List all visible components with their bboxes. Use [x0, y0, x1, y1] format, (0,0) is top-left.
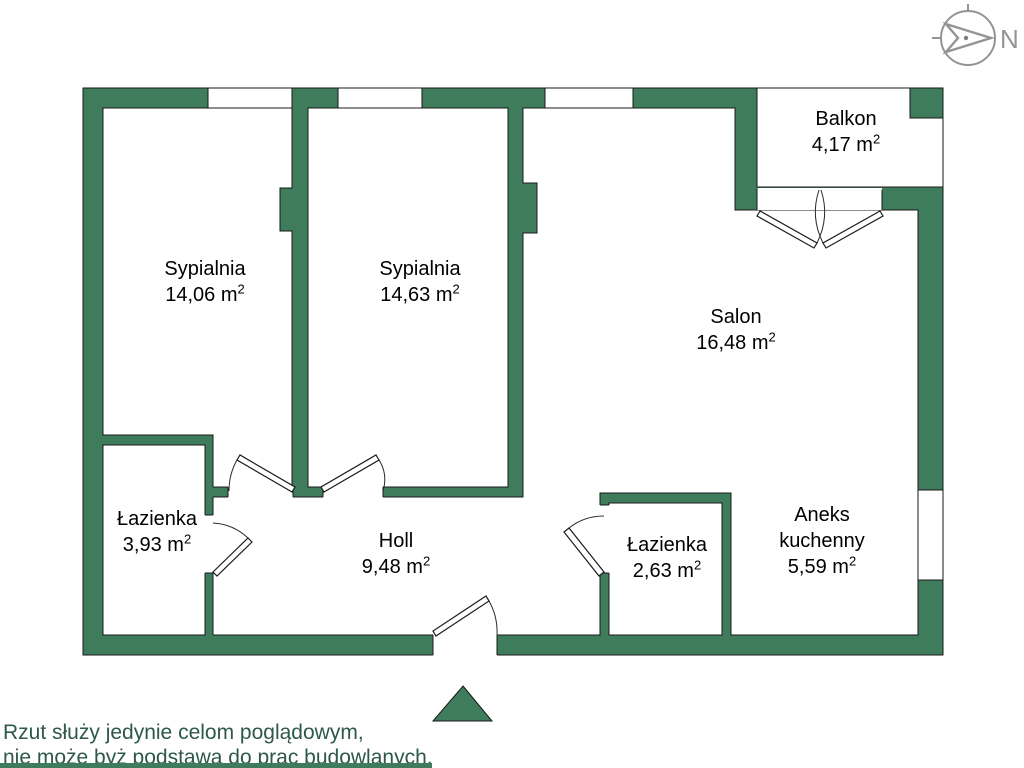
- room-area-value: 2,63 m: [633, 560, 694, 582]
- room-area-sup: 2: [238, 281, 245, 296]
- room-name: Sypialnia: [379, 256, 460, 282]
- bottom-edge-bar: [0, 763, 432, 768]
- room-area-sup: 2: [849, 553, 856, 568]
- room-name: Salon: [696, 304, 776, 330]
- room-area-value: 9,48 m: [362, 556, 423, 578]
- room-name: Łazienka: [627, 532, 707, 558]
- room-area: 14,06 m2: [164, 282, 245, 308]
- room-area-value: 5,59 m: [788, 556, 849, 578]
- room-area: 3,93 m2: [117, 532, 197, 558]
- room-area: 5,59 m2: [779, 554, 865, 580]
- room-name: kuchenny: [779, 528, 865, 554]
- room-area-value: 14,06 m: [165, 284, 237, 306]
- room-area-value: 14,63 m: [380, 284, 452, 306]
- room-label-kitchen: Aneks kuchenny 5,59 m2: [779, 502, 865, 580]
- window-salon: [545, 88, 633, 108]
- room-name: Aneks: [779, 502, 865, 528]
- floor-plan-page: Sypialnia 14,06 m2 Sypialnia 14,63 m2 Sa…: [0, 0, 1024, 768]
- compass-center-dot: [964, 36, 968, 40]
- room-label-bathroom-2: Łazienka 2,63 m2: [627, 532, 707, 584]
- window-bedroom-2: [338, 88, 422, 108]
- room-area-sup: 2: [694, 557, 701, 572]
- room-area-sup: 2: [453, 281, 460, 296]
- room-label-bedroom-1: Sypialnia 14,06 m2: [164, 256, 245, 308]
- entrance-arrow-icon: [433, 686, 492, 721]
- room-name: Holl: [362, 528, 430, 554]
- disclaimer-line-1: Rzut służy jedynie celom poglądowym,: [3, 720, 433, 745]
- room-area-sup: 2: [873, 131, 880, 146]
- room-area: 4,17 m2: [812, 132, 880, 158]
- doorway-balcony: [757, 188, 882, 210]
- room-area-value: 4,17 m: [812, 134, 873, 156]
- doorway-entrance: [433, 634, 497, 656]
- compass-icon: [932, 4, 995, 65]
- room-area-value: 16,48 m: [696, 332, 768, 354]
- room-name: Balkon: [812, 106, 880, 132]
- room-area-sup: 2: [423, 553, 430, 568]
- room-area-sup: 2: [184, 531, 191, 546]
- window-kitchen: [918, 490, 943, 580]
- room-area: 9,48 m2: [362, 554, 430, 580]
- room-area-value: 3,93 m: [123, 534, 184, 556]
- room-label-bathroom-1: Łazienka 3,93 m2: [117, 506, 197, 558]
- room-label-hall: Holl 9,48 m2: [362, 528, 430, 580]
- room-area: 14,63 m2: [379, 282, 460, 308]
- room-label-salon: Salon 16,48 m2: [696, 304, 776, 356]
- compass-north-arrow: [946, 24, 991, 52]
- doorway-bathroom-1: [204, 515, 214, 573]
- doorway-bedroom-1: [228, 486, 293, 498]
- room-area: 2,63 m2: [627, 558, 707, 584]
- room-label-bedroom-2: Sypialnia 14,63 m2: [379, 256, 460, 308]
- compass-north-label: N: [1000, 24, 1019, 55]
- room-area: 16,48 m2: [696, 330, 776, 356]
- window-bedroom-1: [208, 88, 292, 108]
- room-label-balcony: Balkon 4,17 m2: [812, 106, 880, 158]
- room-name: Sypialnia: [164, 256, 245, 282]
- room-name: Łazienka: [117, 506, 197, 532]
- doorway-bathroom-2: [599, 505, 610, 573]
- disclaimer-text: Rzut służy jedynie celom poglądowym, nie…: [3, 720, 433, 768]
- room-area-sup: 2: [769, 329, 776, 344]
